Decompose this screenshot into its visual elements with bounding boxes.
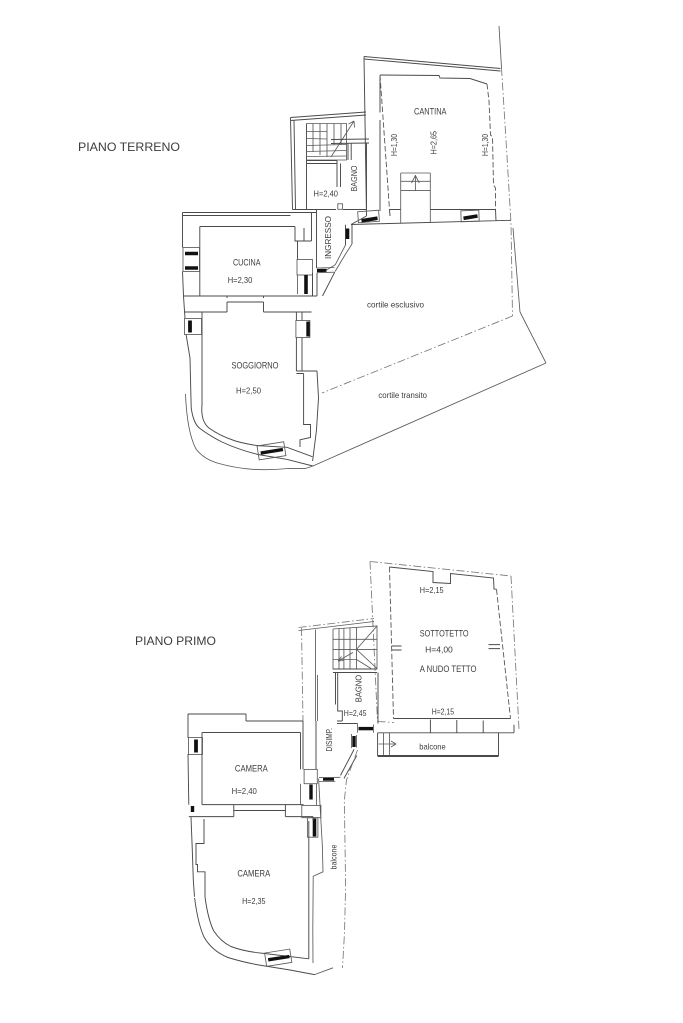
svg-text:BAGNO: BAGNO <box>354 675 364 703</box>
svg-text:cortile transito: cortile transito <box>378 390 427 400</box>
svg-text:H=1,30: H=1,30 <box>480 134 490 156</box>
svg-text:H=2,40: H=2,40 <box>314 189 339 199</box>
svg-text:H=2,50: H=2,50 <box>236 386 261 396</box>
svg-text:H=1,30: H=1,30 <box>389 134 399 156</box>
svg-text:CAMERA: CAMERA <box>235 763 268 773</box>
svg-text:A NUDO TETTO: A NUDO TETTO <box>420 664 477 674</box>
svg-text:PIANO TERRENO: PIANO TERRENO <box>78 142 180 154</box>
svg-text:CAMERA: CAMERA <box>237 868 270 878</box>
svg-text:INGRESSO: INGRESSO <box>323 216 333 259</box>
svg-text:CUCINA: CUCINA <box>233 258 261 268</box>
svg-text:H=2,40: H=2,40 <box>232 786 258 796</box>
svg-text:H=4,00: H=4,00 <box>425 644 453 654</box>
svg-text:CANTINA: CANTINA <box>414 107 447 117</box>
svg-text:DISIMP.: DISIMP. <box>324 728 334 752</box>
svg-text:H=2,30: H=2,30 <box>228 275 253 285</box>
svg-text:H=2,15: H=2,15 <box>420 585 444 595</box>
svg-text:PIANO PRIMO: PIANO PRIMO <box>135 636 216 648</box>
svg-text:cortile esclusivo: cortile esclusivo <box>367 300 424 310</box>
svg-text:H=2,35: H=2,35 <box>242 896 266 906</box>
svg-text:SOGGIORNO: SOGGIORNO <box>232 361 279 371</box>
svg-text:H=2,45: H=2,45 <box>344 708 367 718</box>
svg-text:SOTTOTETTO: SOTTOTETTO <box>420 629 469 639</box>
svg-text:BAGNO: BAGNO <box>349 165 359 191</box>
svg-text:balcone: balcone <box>329 844 339 869</box>
svg-text:H=2,15: H=2,15 <box>432 706 455 716</box>
svg-text:H=2,65: H=2,65 <box>429 131 439 155</box>
svg-text:balcone: balcone <box>419 741 446 751</box>
